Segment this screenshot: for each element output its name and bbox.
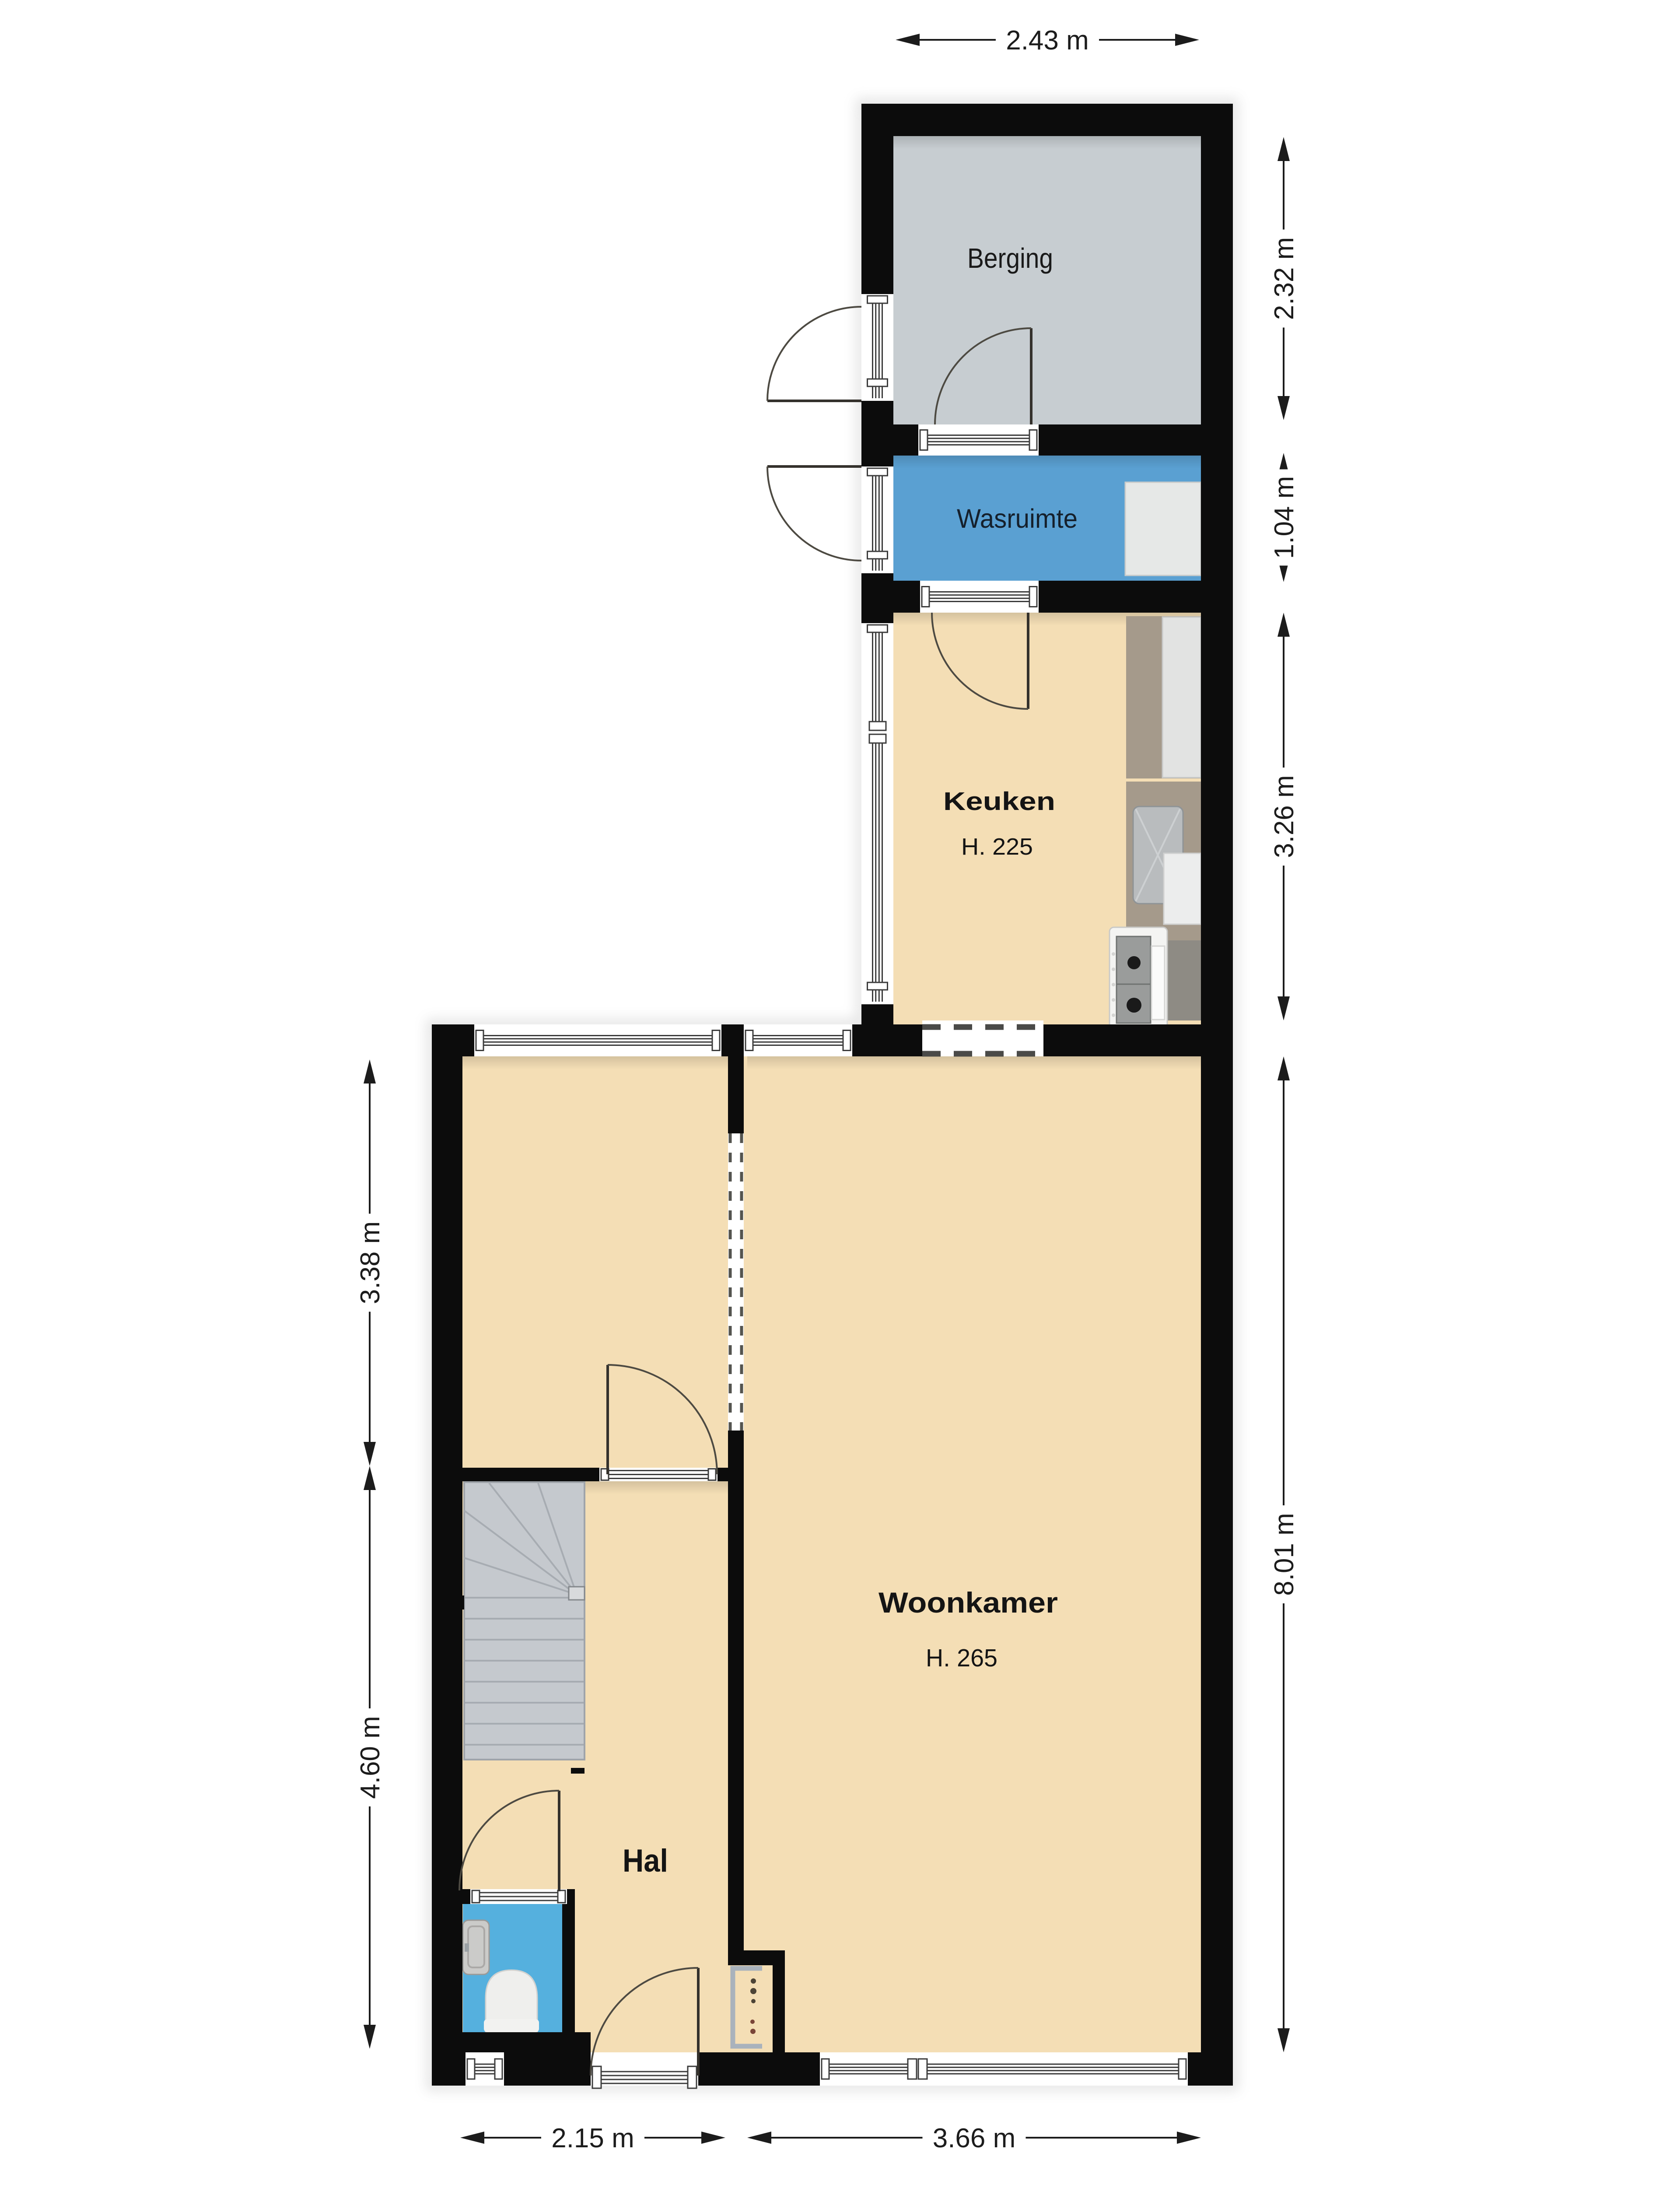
svg-text:2.15 m: 2.15 m — [551, 2123, 634, 2153]
svg-text:2.43 m: 2.43 m — [1006, 25, 1089, 56]
svg-text:3.38 m: 3.38 m — [355, 1221, 385, 1304]
svg-text:3.26 m: 3.26 m — [1269, 775, 1299, 858]
svg-text:Woonkamer: Woonkamer — [878, 1586, 1058, 1619]
svg-text:Berging: Berging — [967, 242, 1053, 274]
svg-text:H. 225: H. 225 — [961, 834, 1033, 860]
svg-text:Hal: Hal — [623, 1843, 668, 1879]
svg-text:1.04 m: 1.04 m — [1269, 476, 1299, 559]
svg-text:H. 265: H. 265 — [926, 1644, 997, 1672]
svg-text:Wasruimte: Wasruimte — [957, 504, 1078, 533]
svg-text:3.66 m: 3.66 m — [933, 2123, 1016, 2153]
svg-text:8.01 m: 8.01 m — [1269, 1513, 1299, 1596]
svg-text:Keuken: Keuken — [943, 787, 1055, 816]
svg-text:4.60 m: 4.60 m — [355, 1716, 385, 1799]
svg-text:2.32 m: 2.32 m — [1269, 237, 1299, 320]
